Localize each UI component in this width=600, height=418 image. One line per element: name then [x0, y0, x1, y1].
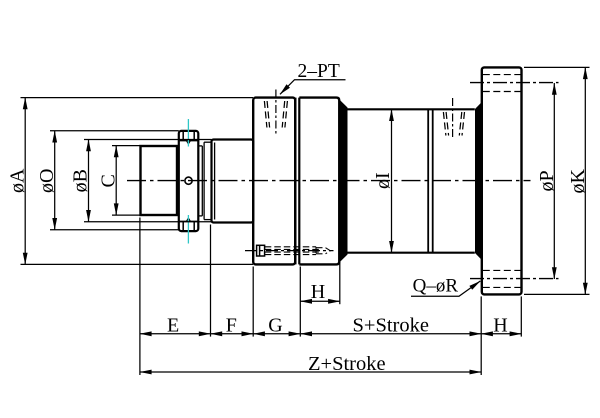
svg-text:H: H: [311, 281, 325, 303]
svg-text:øP: øP: [536, 170, 558, 191]
svg-text:2–PT: 2–PT: [298, 61, 340, 82]
svg-text:Q–øR: Q–øR: [413, 276, 459, 297]
svg-text:F: F: [226, 314, 237, 336]
svg-text:øA: øA: [6, 168, 28, 193]
svg-text:øK: øK: [567, 169, 589, 194]
svg-text:øO: øO: [36, 169, 58, 193]
svg-text:S+Stroke: S+Stroke: [353, 315, 430, 337]
svg-text:øI: øI: [372, 172, 394, 189]
svg-text:Z+Stroke: Z+Stroke: [308, 353, 386, 375]
svg-text:C: C: [97, 174, 119, 187]
svg-text:H: H: [493, 314, 507, 336]
svg-text:E: E: [167, 314, 179, 336]
svg-text:G: G: [268, 314, 282, 336]
svg-text:øB: øB: [70, 169, 92, 192]
